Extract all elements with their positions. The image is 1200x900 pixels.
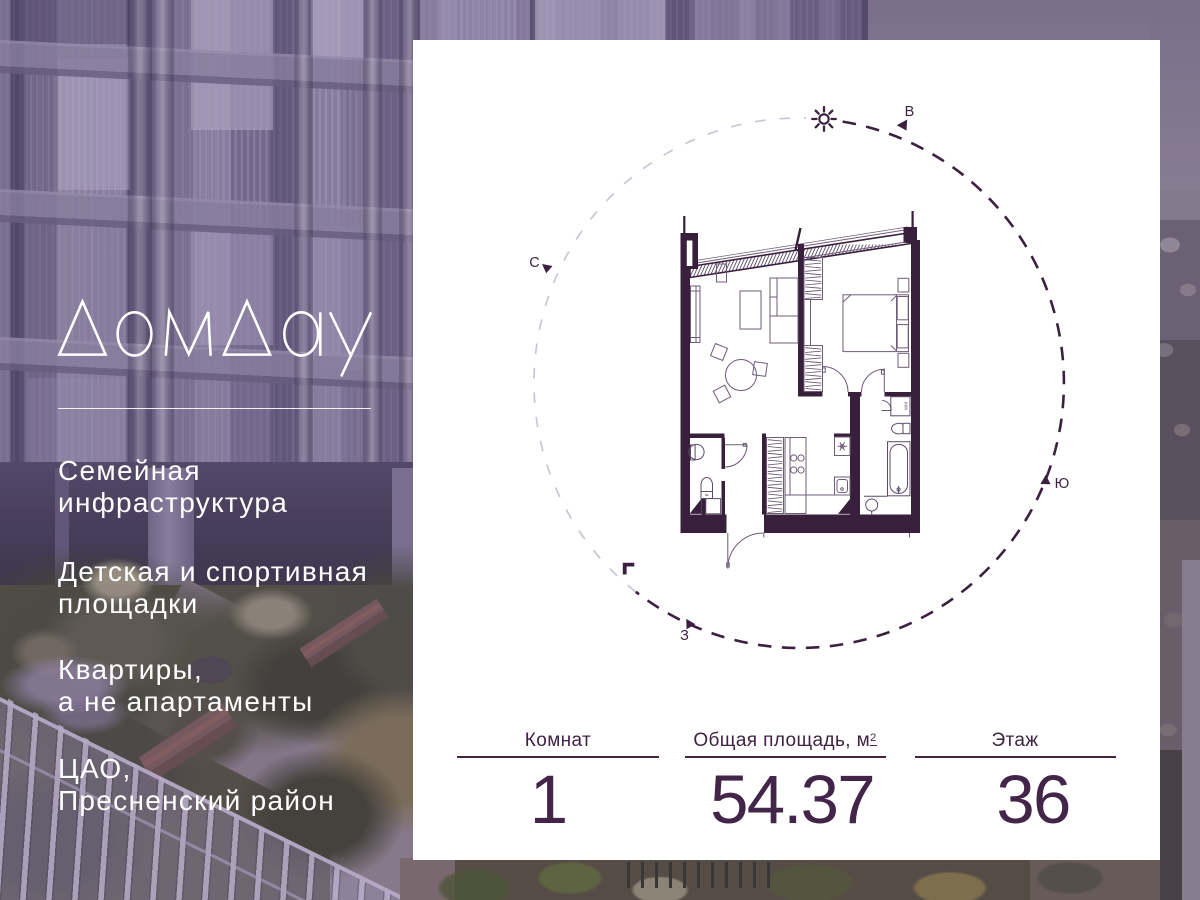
svg-text:WM: WM — [904, 402, 909, 410]
